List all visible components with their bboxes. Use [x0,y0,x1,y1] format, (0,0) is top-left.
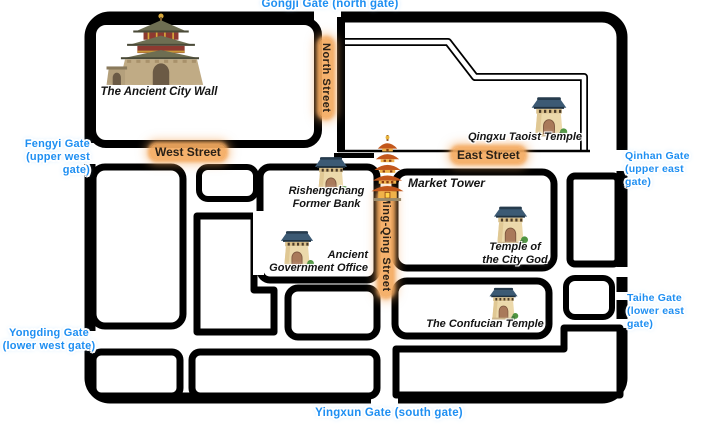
east-lane-opening-upper [616,267,629,277]
landmark-label-ancient-city-wall: The Ancient City Wall [96,86,222,99]
landmark-label-temple-of-city-god: Temple ofthe City God [474,241,556,266]
city-wall-tower-icon [104,13,218,87]
city-god-gate-tower-icon [493,204,528,245]
gate-label-gongji: Gongji Gate (north gate) [238,0,422,11]
gate-label-yongding: Yongding Gate(lower west gate) [0,327,98,353]
block-south-middle [192,352,377,396]
block-taihe [566,278,612,317]
street-label-east-street: East Street [452,147,525,163]
market-tower-pagoda-icon [371,134,404,202]
landmark-label-confucian-temple: The Confucian Temple [423,318,547,331]
street-label-north-street: North Street [319,38,333,118]
street-label-west-street: West Street [150,144,226,160]
gate-label-qinhan: Qinhan Gate(upper east gate) [625,150,708,189]
ancient-city-map: The Ancient City Wall Qingxu Taoist Temp… [0,0,708,435]
gate-label-yingxun: Yingxun Gate (south gate) [297,407,481,420]
gate-label-taihe: Taihe Gate(lower east gate) [627,292,708,331]
block-east-tall [570,176,618,264]
block-central-small [288,288,377,337]
landmark-label-ancient-government-office: AncientGovernment Office [254,249,368,274]
street-label-ming-qing-street: Ming-Qing Street [379,190,393,297]
landmark-label-rishengchang-former-bank: RishengchangFormer Bank [279,185,374,210]
block-west-large [93,167,183,326]
block-south-west [93,352,180,396]
gate-label-fengyi: Fengyi Gate(upper west gate) [0,138,90,177]
landmark-label-market-tower: Market Tower [408,177,500,190]
landmark-label-qingxu-taoist-temple: Qingxu Taoist Temple [463,131,587,144]
confucian-gate-tower-icon [487,286,520,320]
block-small-north [199,167,256,199]
